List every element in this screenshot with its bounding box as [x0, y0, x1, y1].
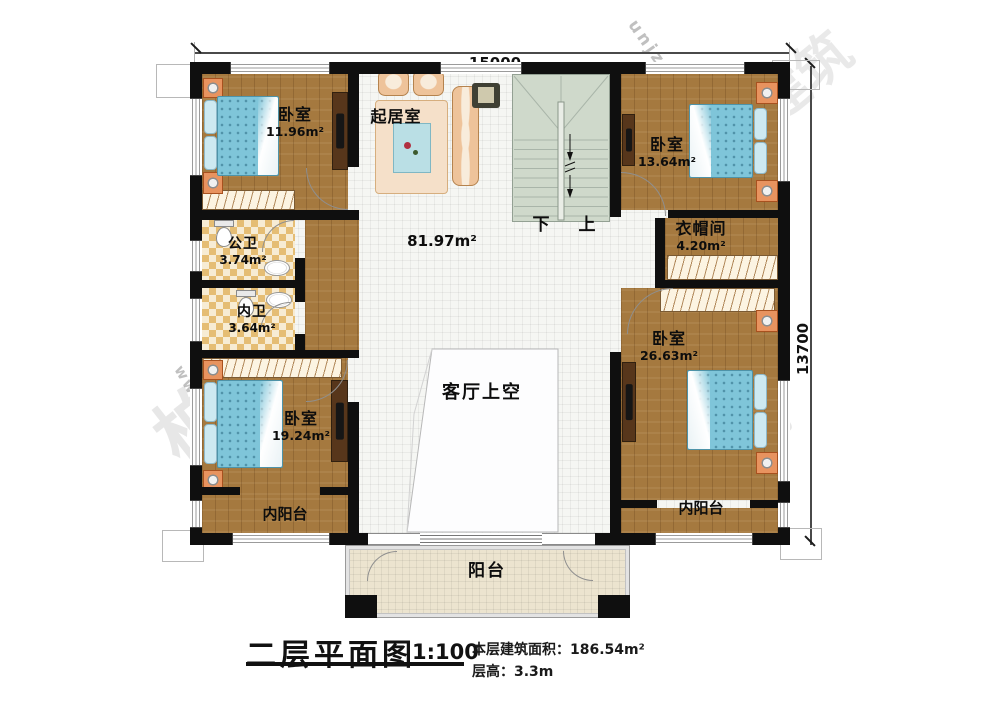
room-label-private-bath: 内卫 3.64m² [204, 304, 300, 335]
wall [202, 280, 298, 288]
window [190, 98, 202, 176]
sliding-door [420, 533, 542, 545]
room-name: 内阳台 [232, 506, 338, 524]
room-name: 阳台 [437, 561, 537, 581]
window [645, 62, 745, 74]
void-label: 客厅上空 [426, 382, 538, 403]
tv-screen [478, 87, 494, 103]
wall [655, 280, 778, 288]
wall [668, 210, 778, 218]
room-label-bedroom-topleft: 卧室 11.96m² [242, 106, 348, 140]
pillow [204, 100, 217, 134]
window [232, 533, 330, 545]
floor-height-label: 层高： [472, 664, 514, 680]
nightstand [203, 78, 223, 98]
window [655, 533, 753, 545]
title-underline [246, 662, 464, 666]
balcony-post [598, 595, 630, 618]
window [190, 298, 202, 342]
wall [610, 352, 621, 533]
room-label-living: 起居室 [358, 108, 434, 127]
balcony-label: 阳台 [437, 561, 537, 581]
desk [622, 362, 636, 442]
floor-plan: 卧室 11.96m² 起居室 卧室 13.64m² 衣帽间 4.20m² 公卫 … [190, 62, 790, 545]
room-area: 26.63m² [616, 349, 722, 364]
window [778, 380, 790, 482]
pillow [754, 108, 767, 140]
pillow [754, 412, 767, 448]
drawing-title: 二层平面图 [246, 630, 416, 674]
room-area: 11.96m² [242, 125, 348, 140]
nightstand [756, 452, 778, 474]
floor-height-note: 层高：3.3m [472, 661, 553, 681]
room-label-public-bath: 公卫 3.74m² [198, 236, 288, 267]
nightstand [756, 180, 778, 202]
closet [667, 255, 778, 280]
room-label-bedroom-topright: 卧室 13.64m² [614, 136, 720, 170]
room-area: 13.64m² [614, 155, 720, 170]
bed [687, 370, 753, 450]
wall [295, 210, 305, 220]
closet [660, 288, 775, 312]
room-area: 4.20m² [648, 239, 754, 254]
room-area: 81.97m² [396, 233, 488, 251]
window [190, 388, 202, 466]
nightstand [756, 310, 778, 332]
room-name: 起居室 [358, 108, 434, 127]
floor-area-label: 本层建筑面积： [472, 642, 570, 658]
dimension-height: 13700 [794, 318, 812, 380]
stair-down-label: 下 [526, 215, 556, 235]
inner-balcony-right-label: 内阳台 [648, 500, 754, 518]
wall [202, 350, 359, 358]
floor-height-value: 3.3m [514, 664, 553, 680]
wall [320, 487, 359, 495]
floorplan-page: 柏筑建筑 柏筑建筑 柏筑建筑 unjz.com www.b 15000 1370… [0, 0, 1000, 706]
room-name: 内阳台 [648, 500, 754, 518]
pillow [754, 142, 767, 174]
toilet-tank [214, 220, 234, 227]
drawing-scale: 1:100 [412, 640, 479, 664]
nightstand [203, 360, 223, 380]
room-name: 卧室 [242, 106, 348, 125]
room-name: 客厅上空 [426, 382, 538, 403]
wall [202, 487, 240, 495]
room-name: 卧室 [616, 330, 722, 349]
dimension-line-right [810, 66, 812, 545]
room-name: 卧室 [614, 136, 720, 155]
wall [750, 500, 778, 508]
rug-center [393, 123, 431, 173]
room-label-bedroom-bottomright: 卧室 26.63m² [616, 330, 722, 364]
inner-balcony-left-label: 内阳台 [232, 506, 338, 524]
balcony: 阳台 [345, 545, 630, 618]
room-label-cloakroom: 衣帽间 4.20m² [648, 220, 754, 254]
pillow [204, 382, 217, 422]
window [778, 502, 790, 528]
stair-up-label: 上 [572, 215, 602, 235]
room-name: 公卫 [198, 236, 288, 253]
room-name: 内卫 [204, 304, 300, 321]
room-area: 3.74m² [198, 253, 288, 267]
room-label-bedroom-bottomleft: 卧室 19.24m² [248, 410, 354, 444]
bed-sheet [688, 371, 710, 449]
pillow [754, 374, 767, 410]
flower-decor [413, 150, 418, 155]
toilet-tank [236, 290, 256, 297]
wall [202, 210, 359, 220]
room-name: 衣帽间 [648, 220, 754, 239]
window [190, 500, 202, 528]
bath-lobby-floor [305, 210, 359, 358]
room-name: 卧室 [248, 410, 354, 429]
floor-area-note: 本层建筑面积：186.54m² [472, 639, 645, 659]
nightstand [756, 82, 778, 104]
pillow [204, 136, 217, 170]
tv-cabinet [472, 83, 500, 108]
room-area: 3.64m² [204, 321, 300, 335]
floor-area-value: 186.54m² [570, 642, 645, 658]
window [230, 62, 330, 74]
hall-area-label: 81.97m² [396, 233, 488, 251]
room-area: 19.24m² [248, 429, 354, 444]
stair-up-text: 上 [572, 215, 602, 235]
flower-decor [404, 142, 411, 149]
stair-down-text: 下 [526, 215, 556, 235]
window [440, 62, 522, 74]
window [778, 98, 790, 182]
staircase [512, 74, 610, 222]
balcony-post [345, 595, 377, 618]
pillow [204, 424, 217, 464]
